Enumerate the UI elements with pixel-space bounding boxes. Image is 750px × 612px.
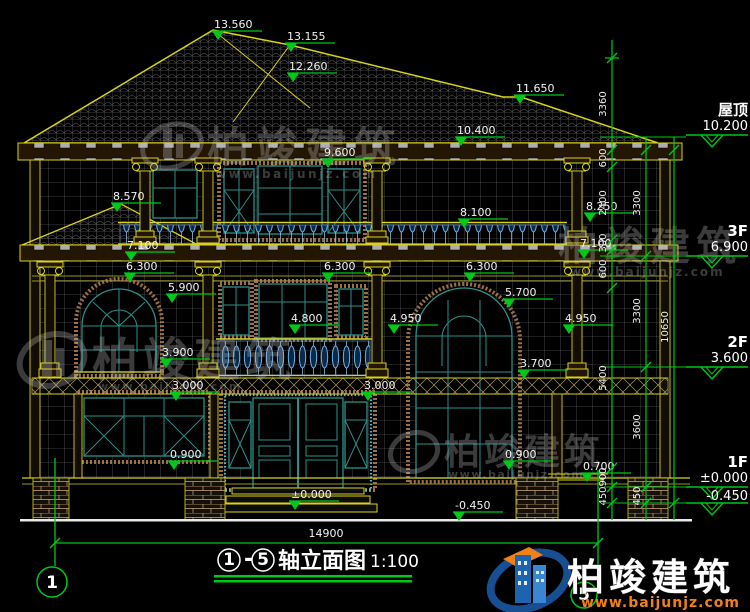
axis-bubble-left: 1: [37, 567, 67, 597]
svg-text:5.700: 5.700: [505, 286, 537, 299]
level-marker: -0.450: [453, 499, 503, 521]
svg-text:450: 450: [632, 486, 643, 505]
svg-text:-0.450: -0.450: [455, 499, 490, 512]
logo-brand-text: 柏竣建筑: [567, 556, 735, 599]
svg-text:8.100: 8.100: [460, 206, 492, 219]
svg-text:3600: 3600: [632, 414, 643, 439]
level-marker: 11.650: [514, 82, 564, 104]
svg-text:3.700: 3.700: [520, 357, 552, 370]
svg-text:3F: 3F: [727, 222, 748, 240]
svg-text:6.300: 6.300: [126, 260, 158, 273]
floor-marks: 屋顶 10.200 3F 6.900 2F 3.600 1F ±0.000 -0…: [686, 101, 748, 515]
svg-text:3360: 3360: [598, 91, 609, 116]
svg-text:屋顶: 屋顶: [718, 101, 748, 119]
svg-text:600: 600: [598, 259, 609, 278]
svg-text:3.900: 3.900: [162, 346, 194, 359]
svg-text:2F: 2F: [727, 333, 748, 351]
svg-text:600: 600: [598, 148, 609, 167]
svg-text:7.100: 7.100: [127, 239, 159, 252]
svg-text:10.200: 10.200: [703, 119, 749, 134]
svg-text:4.950: 4.950: [390, 312, 422, 325]
svg-text:3.000: 3.000: [364, 379, 396, 392]
ground-line: [20, 519, 692, 522]
svg-text:-0.450: -0.450: [706, 489, 748, 504]
title-axis-to: 5: [257, 550, 269, 570]
svg-text:3.600: 3.600: [711, 351, 748, 366]
title-axis-from: 1: [223, 550, 235, 570]
overall-width-value: 14900: [309, 527, 344, 540]
svg-text:4.800: 4.800: [291, 312, 323, 325]
floor-mark-minus450: -0.450: [686, 489, 748, 515]
window-2f-center: [220, 281, 366, 340]
svg-text:12.260: 12.260: [289, 60, 328, 73]
svg-text:±0.000: ±0.000: [700, 471, 748, 486]
svg-text:11.650: 11.650: [516, 82, 555, 95]
balcony-3f: [118, 223, 567, 245]
svg-text:3.000: 3.000: [172, 379, 204, 392]
svg-text:10.400: 10.400: [457, 124, 496, 137]
svg-text:13.155: 13.155: [287, 30, 326, 43]
svg-text:1F: 1F: [727, 453, 748, 471]
svg-text:900: 900: [598, 467, 609, 486]
svg-text:柏竣建筑: 柏竣建筑: [207, 123, 403, 172]
svg-text:2400: 2400: [598, 190, 609, 215]
svg-text:450: 450: [598, 486, 609, 505]
elevation-drawing: 柏竣建筑 www.baijunjz.com 柏竣建筑 www.baijunjz.…: [0, 0, 750, 612]
window-3f-left: [153, 170, 197, 218]
brand-logo: 柏竣建筑 www.baijunjz.com: [482, 542, 740, 612]
svg-text:10650: 10650: [660, 311, 671, 343]
svg-text:300: 300: [598, 233, 609, 252]
level-marker: 13.155: [285, 30, 335, 52]
drawing-title: 轴立面图: [278, 548, 366, 574]
svg-text:0.900: 0.900: [170, 448, 202, 461]
title-block: 1 - 5 轴立面图 1:100: [214, 547, 419, 583]
svg-text:3300: 3300: [632, 190, 643, 215]
svg-text:1: 1: [46, 573, 58, 593]
svg-text:www.baijunjz.com: www.baijunjz.com: [570, 265, 725, 279]
svg-text:5.900: 5.900: [168, 281, 200, 294]
svg-text:0.900: 0.900: [505, 448, 537, 461]
corner-pilaster-left: [30, 160, 40, 478]
svg-text:5400: 5400: [598, 365, 609, 390]
svg-text:8.570: 8.570: [113, 190, 145, 203]
svg-text:±0.000: ±0.000: [291, 488, 332, 501]
svg-text:3300: 3300: [632, 298, 643, 323]
svg-text:6.300: 6.300: [324, 260, 356, 273]
logo-site-text: www.baijunjz.com: [581, 595, 740, 611]
svg-text:13.560: 13.560: [214, 18, 253, 31]
floor-mark-roof: 屋顶 10.200: [686, 101, 748, 147]
svg-text:www.baijunjz.com: www.baijunjz.com: [98, 380, 242, 393]
svg-text:6.900: 6.900: [711, 240, 748, 255]
svg-text:4.950: 4.950: [565, 312, 597, 325]
cad-canvas: 柏竣建筑 www.baijunjz.com 柏竣建筑 www.baijunjz.…: [0, 0, 750, 612]
svg-text:6.300: 6.300: [466, 260, 498, 273]
svg-text:www.baijunjz.com: www.baijunjz.com: [448, 468, 584, 481]
drawing-scale: 1:100: [370, 552, 419, 572]
floor-mark-2f: 2F 3.600: [686, 333, 748, 379]
svg-text:9.600: 9.600: [324, 146, 356, 159]
svg-text:www.baijunjz.com: www.baijunjz.com: [215, 167, 378, 181]
